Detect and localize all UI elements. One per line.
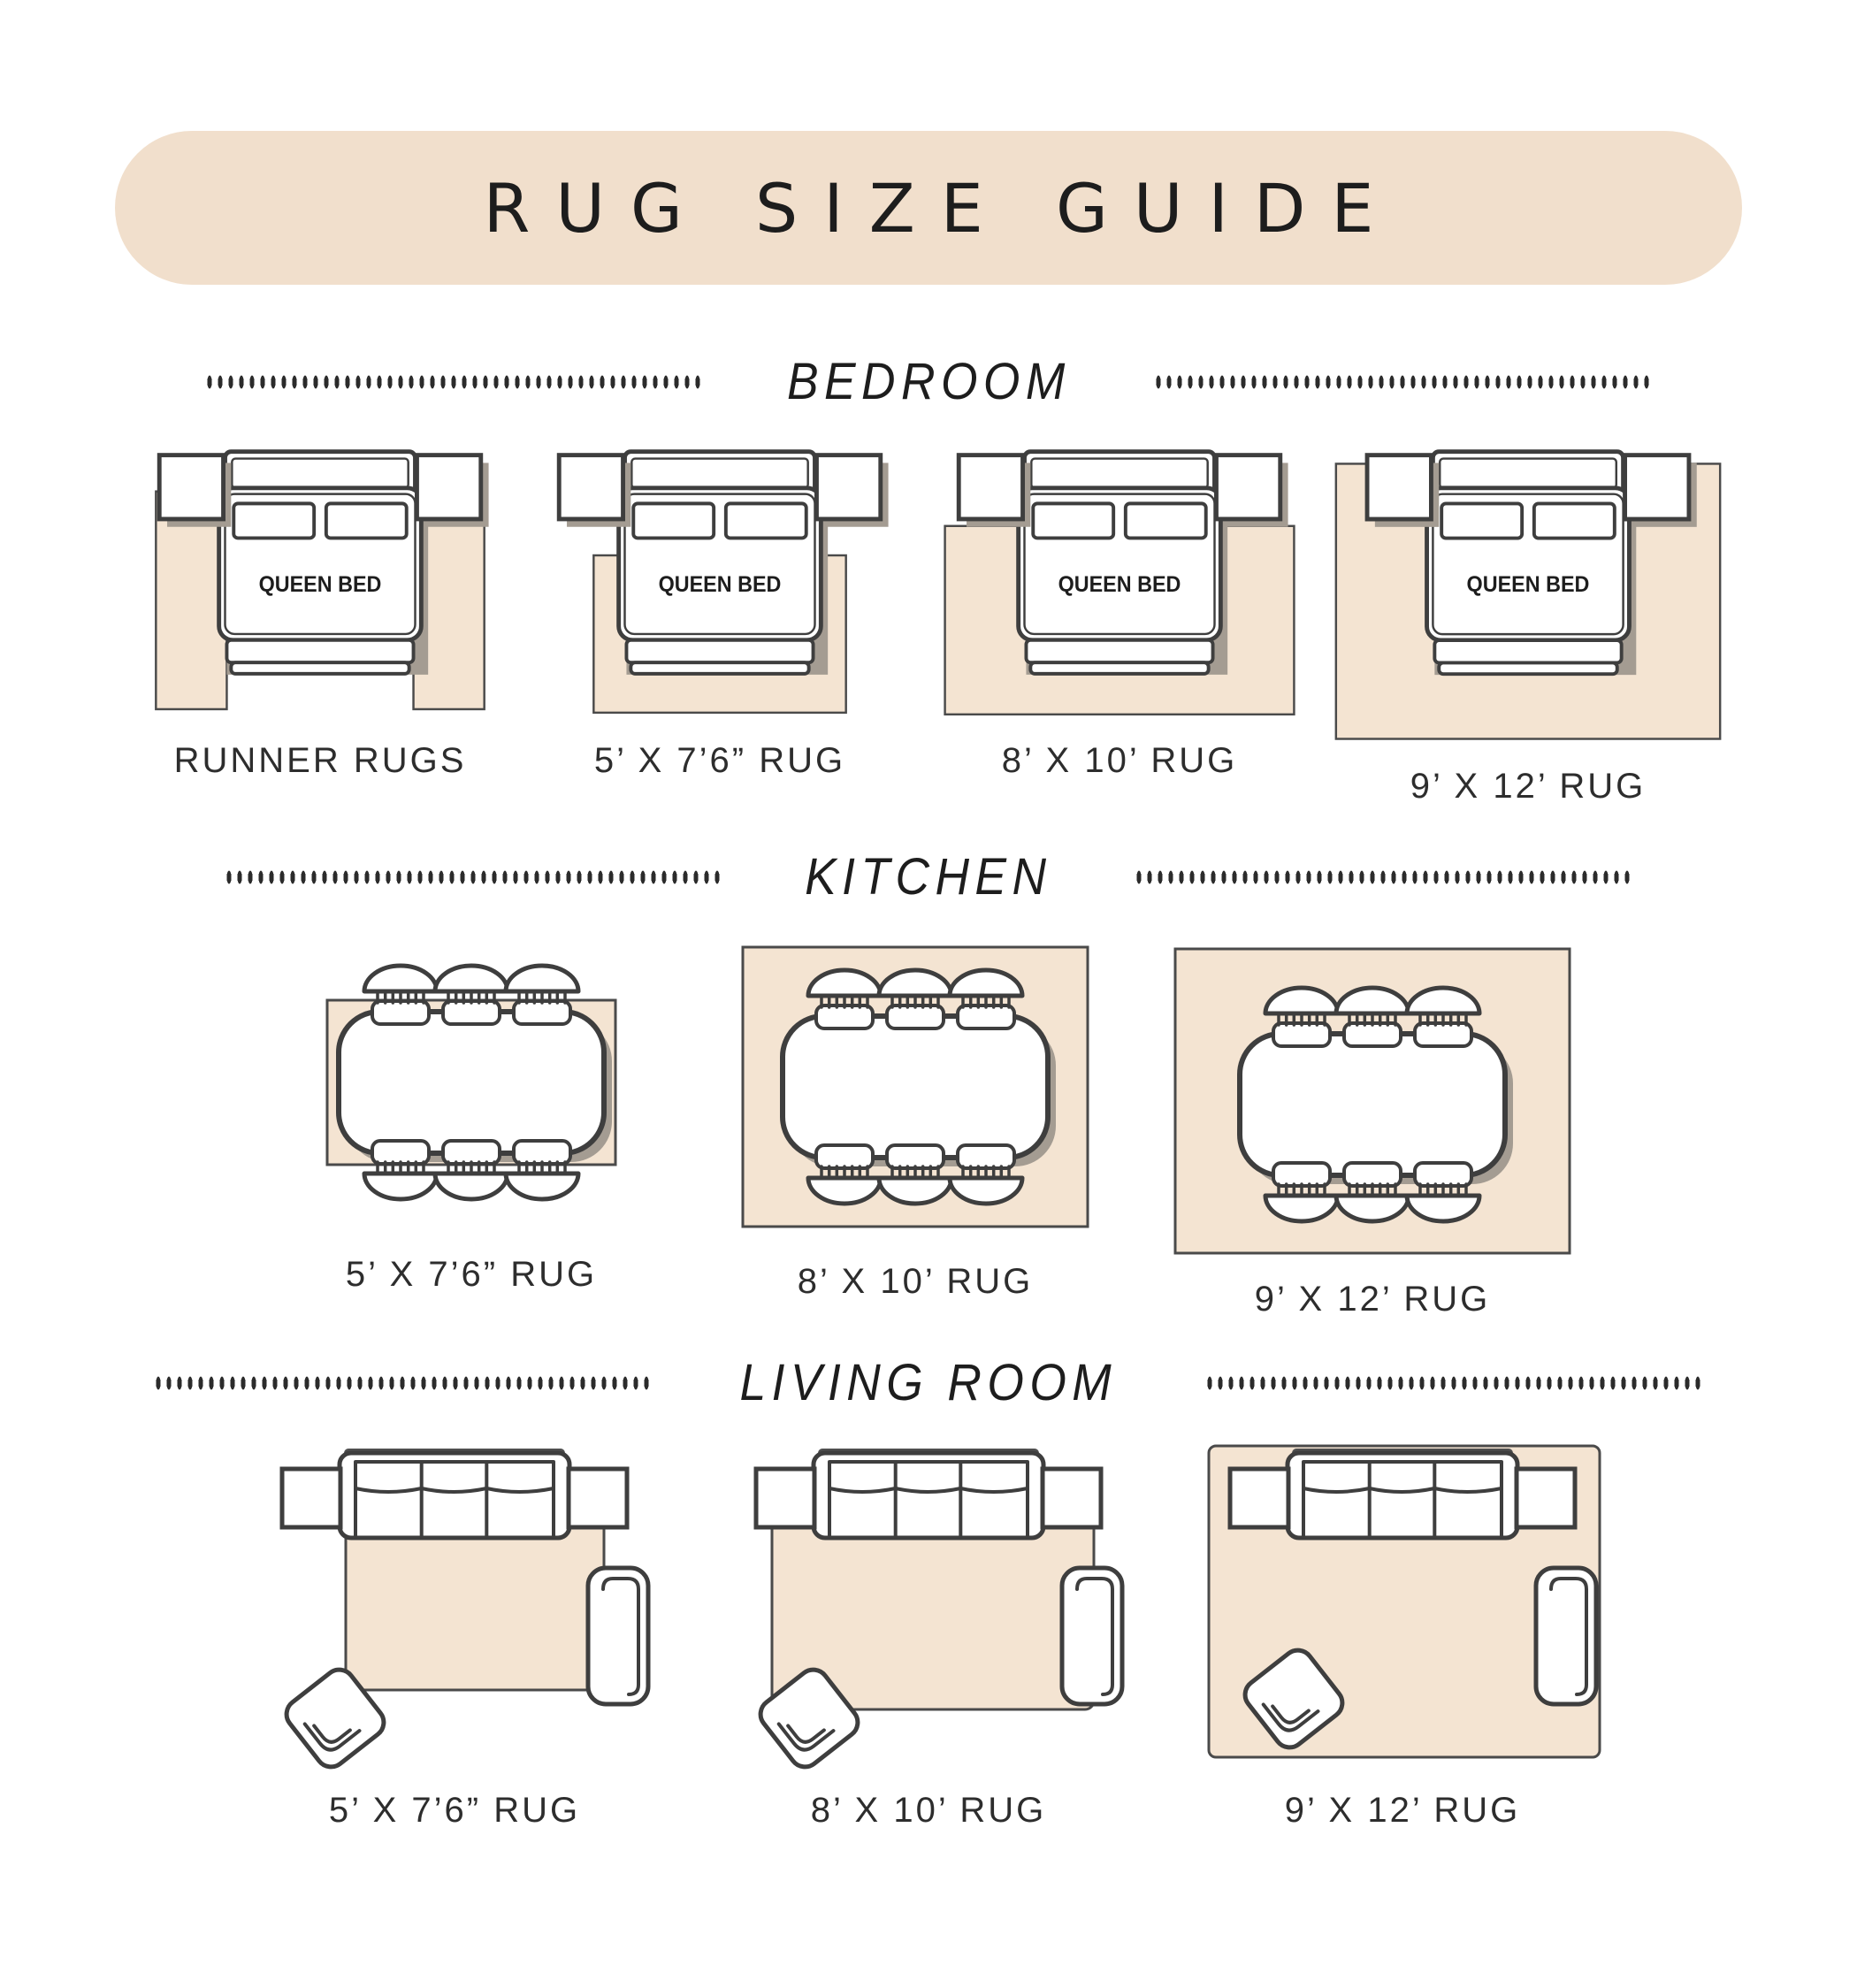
rug-size-label: 8’ X 10’ RUG — [798, 1262, 1033, 1302]
end-table-left-icon — [1230, 1469, 1288, 1527]
bedroom-9x12-cell: 9’ X 12’ RUG — [1329, 441, 1727, 807]
kitchen-9x12-diagram — [1165, 937, 1580, 1265]
rug-size-label: 9’ X 12’ RUG — [1410, 767, 1646, 807]
chair-icon — [506, 966, 578, 1024]
queen-bed-icon — [1427, 452, 1637, 675]
rug-size-label: RUNNER RUGS — [174, 741, 467, 781]
bedroom-8x10-cell: 8’ X 10’ RUG — [929, 441, 1310, 781]
section-title: LIVING ROOM — [740, 1353, 1118, 1412]
chaise-chair-icon — [588, 1568, 648, 1704]
chaise-chair-icon — [1062, 1568, 1122, 1704]
rug-size-label: 8’ X 10’ RUG — [811, 1791, 1046, 1831]
nightstand-right-icon — [1625, 455, 1697, 527]
end-table-right-icon — [1043, 1469, 1101, 1527]
kitchen-5x76-diagram — [277, 937, 666, 1241]
living-8x10-diagram — [721, 1437, 1136, 1777]
living-5x76-cell: 5’ X 7’6” RUG — [247, 1437, 662, 1831]
section-title: BEDROOM — [787, 352, 1071, 411]
rug-size-label: 9’ X 12’ RUG — [1285, 1791, 1520, 1831]
section-title: KITCHEN — [805, 847, 1051, 906]
dotted-divider-right — [1153, 375, 1653, 389]
chair-icon — [364, 1141, 437, 1199]
runner-rugs-diagram — [130, 441, 510, 727]
queen-bed-icon — [1019, 452, 1228, 675]
nightstand-right-icon — [816, 455, 888, 527]
kitchen-5x76-cell: 5’ X 7’6” RUG — [277, 937, 666, 1295]
living-8x10-cell: 8’ X 10’ RUG — [721, 1437, 1136, 1831]
living-9x12-diagram — [1195, 1437, 1610, 1777]
rug-size-guide-page: RUG SIZE GUIDE BEDROOM RUNNER RUGS — [0, 131, 1857, 1988]
nightstand-right-icon — [1216, 455, 1288, 527]
rug-size-label: 5’ X 7’6” RUG — [594, 741, 845, 781]
rug-size-label: 5’ X 7’6” RUG — [346, 1255, 597, 1295]
bedroom-row: RUNNER RUGS 5’ X 7’6” RUG 8’ X 10’ RUG — [0, 441, 1857, 807]
rug-size-label: 9’ X 12’ RUG — [1255, 1280, 1490, 1319]
nightstand-right-icon — [416, 455, 488, 527]
page-title: RUG SIZE GUIDE — [458, 169, 1400, 248]
chaise-chair-icon — [1536, 1568, 1596, 1704]
living-5x76-diagram — [247, 1437, 662, 1777]
rug-size-label: 5’ X 7’6” RUG — [329, 1791, 580, 1831]
end-table-left-icon — [756, 1469, 814, 1527]
queen-bed-icon — [619, 452, 829, 675]
dotted-divider-right — [1134, 870, 1633, 884]
nightstand-left-icon — [559, 455, 630, 527]
sofa-icon — [814, 1449, 1043, 1538]
section-heading-living-room: LIVING ROOM — [0, 1353, 1857, 1412]
chair-icon — [364, 966, 437, 1024]
nightstand-left-icon — [1367, 455, 1439, 527]
dotted-divider-left — [153, 1376, 653, 1390]
dotted-divider-left — [204, 375, 704, 389]
end-table-left-icon — [282, 1469, 340, 1527]
sofa-icon — [1288, 1449, 1517, 1538]
chair-icon — [506, 1141, 578, 1199]
nightstand-left-icon — [959, 455, 1030, 527]
section-heading-kitchen: KITCHEN — [0, 847, 1857, 906]
bedroom-9x12-diagram — [1329, 441, 1727, 753]
bedroom-5x76-cell: 5’ X 7’6” RUG — [530, 441, 910, 781]
bedroom-5x76-diagram — [530, 441, 910, 727]
chair-icon — [435, 966, 508, 1024]
queen-bed-icon — [219, 452, 429, 675]
kitchen-8x10-diagram — [721, 937, 1110, 1248]
title-banner: RUG SIZE GUIDE — [115, 131, 1742, 285]
sofa-icon — [340, 1449, 569, 1538]
living-room-row: 5’ X 7’6” RUG 8’ X 10’ RUG 9’ — [0, 1437, 1857, 1831]
section-heading-bedroom: BEDROOM — [0, 352, 1857, 411]
kitchen-row: 5’ X 7’6” RUG 8’ X 10’ RUG — [0, 937, 1857, 1319]
end-table-right-icon — [1517, 1469, 1575, 1527]
chair-icon — [435, 1141, 508, 1199]
nightstand-left-icon — [159, 455, 231, 527]
kitchen-9x12-cell: 9’ X 12’ RUG — [1165, 937, 1580, 1319]
dotted-divider-left — [224, 870, 723, 884]
living-9x12-cell: 9’ X 12’ RUG — [1195, 1437, 1610, 1831]
end-table-right-icon — [569, 1469, 627, 1527]
bedroom-runner-cell: RUNNER RUGS — [130, 441, 510, 781]
bedroom-8x10-diagram — [929, 441, 1310, 727]
rug-size-label: 8’ X 10’ RUG — [1002, 741, 1237, 781]
dotted-divider-right — [1204, 1376, 1704, 1390]
kitchen-8x10-cell: 8’ X 10’ RUG — [721, 937, 1110, 1302]
